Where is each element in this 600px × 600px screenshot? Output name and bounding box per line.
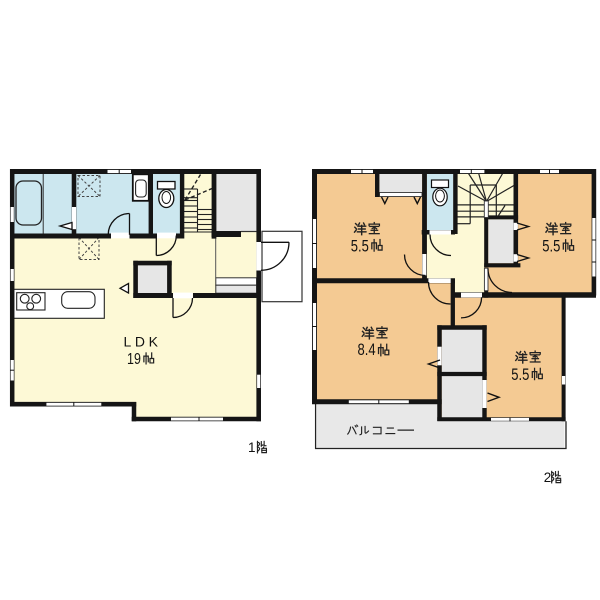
svg-text:2: 2 bbox=[544, 470, 552, 485]
svg-text:LDK: LDK bbox=[124, 334, 162, 350]
svg-text:19: 19 bbox=[127, 349, 141, 367]
svg-text:5.5: 5.5 bbox=[542, 237, 560, 256]
svg-text:5.5: 5.5 bbox=[351, 237, 369, 256]
svg-text:1: 1 bbox=[248, 440, 256, 455]
svg-text:5.5: 5.5 bbox=[511, 366, 529, 385]
svg-text:8.4: 8.4 bbox=[358, 340, 376, 359]
